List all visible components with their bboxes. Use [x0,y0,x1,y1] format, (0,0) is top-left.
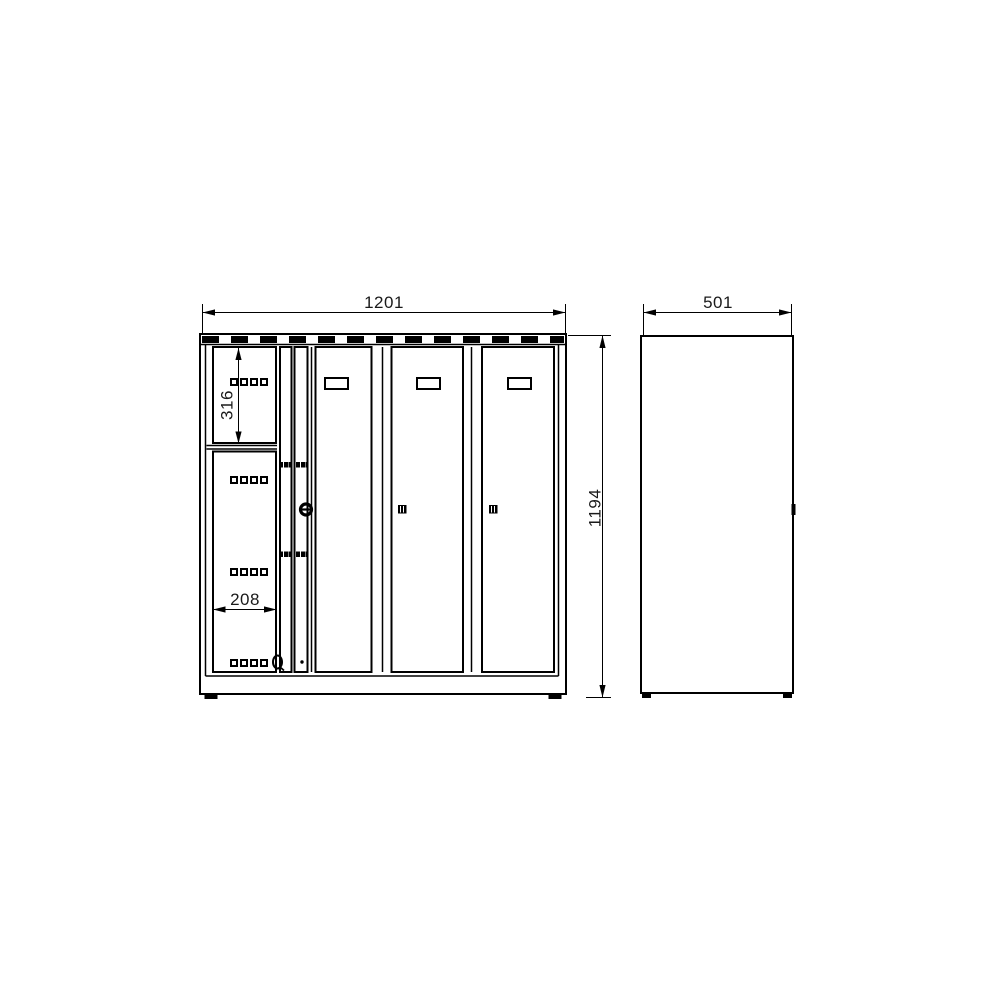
hinge-mark-icon [289,462,292,468]
perforation-hole-icon [231,379,237,385]
front-view [200,334,566,699]
hinge-mark-icon [306,462,309,468]
dimension-overall-width: 1201 [203,293,566,333]
drawing-sheet: 1201 1194 316 208 501 [0,0,1000,1000]
perforation-hole-icon [251,660,257,666]
bolt-dot-icon [300,660,303,663]
narrow-door-strip-left [280,347,292,672]
locker-technical-drawing: 1201 1194 316 208 501 [0,0,1000,1000]
main-door-1 [316,347,372,672]
dimension-label-upper-compartment-height: 316 [218,390,237,420]
perforation-hole-icon [261,379,267,385]
hinge-mark-icon [301,552,305,558]
perforation-hole-icon [241,569,247,575]
perforation-hole-icon [241,477,247,483]
perforation-hole-icon [231,477,237,483]
arrowhead [553,309,566,315]
perforation-hole-icon [241,379,247,385]
handle-slot-icon [417,378,440,389]
hinge-mark-icon [301,462,305,468]
hinge-mark-icon [279,462,283,468]
foot-icon [642,694,651,699]
dimension-label-overall-width: 1201 [364,293,404,312]
foot-icon [549,695,562,700]
dimension-overall-height: 1194 [568,336,611,698]
hinge-mark-icon [284,462,288,468]
foot-icon [205,695,218,700]
perforation-hole-icon [251,569,257,575]
perforation-hole-icon [261,569,267,575]
door-lock-icon [398,505,407,514]
dimension-depth: 501 [644,293,792,335]
perforation-hole-icon [251,477,257,483]
lower-compartment-door [213,452,276,673]
arrowhead [644,309,657,315]
hinge-mark-icon [296,462,300,468]
perforation-hole-icon [261,477,267,483]
perforation-hole-icon [251,379,257,385]
side-view [641,336,796,698]
handle-slot-icon [325,378,348,389]
arrowhead [203,309,216,315]
perforation-hole-icon [261,660,267,666]
handle-slot-icon [508,378,531,389]
perforation-hole-icon [241,660,247,666]
arrowhead [599,336,605,349]
hinge-mark-icon [284,552,288,558]
hinge-mark-icon [289,552,292,558]
side-outline [641,336,793,693]
arrowhead [779,309,792,315]
perforation-hole-icon [231,569,237,575]
dimension-label-compartment-width: 208 [230,590,260,609]
foot-icon [783,694,792,699]
perforation-hole-icon [231,660,237,666]
hinge-mark-icon [279,552,283,558]
hinge-mark-icon [306,552,309,558]
dimension-label-overall-height: 1194 [586,489,605,528]
dimension-label-depth: 501 [703,293,733,312]
arrowhead [599,685,605,698]
door-lock-icon [489,505,498,514]
side-lock-bump-icon [792,504,796,515]
hinge-mark-icon [296,552,300,558]
